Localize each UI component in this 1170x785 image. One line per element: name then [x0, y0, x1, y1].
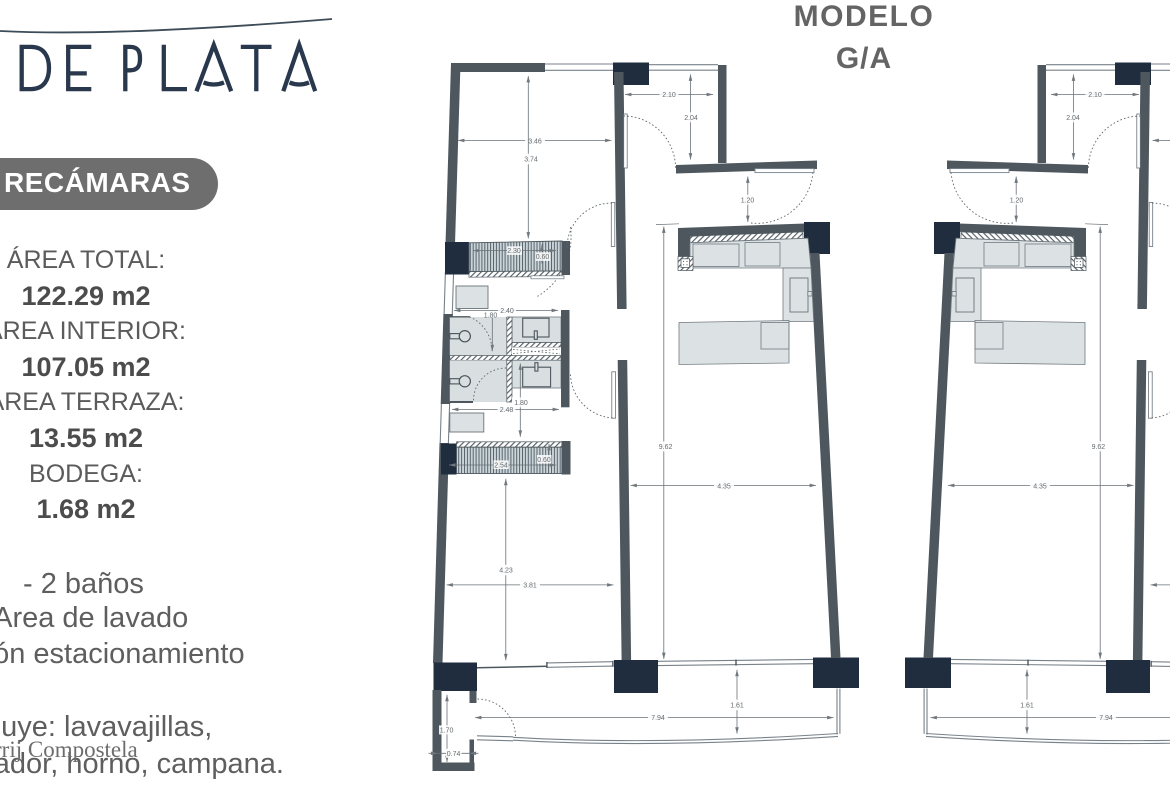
- svg-text:4.35: 4.35: [717, 484, 731, 491]
- svg-text:9.62: 9.62: [1092, 444, 1106, 451]
- svg-text:9.62: 9.62: [659, 444, 673, 451]
- svg-text:2.04: 2.04: [1066, 115, 1080, 122]
- svg-text:3.74: 3.74: [524, 157, 538, 164]
- svg-text:0.60: 0.60: [537, 457, 551, 464]
- svg-text:1.20: 1.20: [741, 197, 755, 204]
- svg-text:2.40: 2.40: [500, 308, 514, 315]
- svg-text:2.48: 2.48: [500, 407, 514, 414]
- svg-text:1.20: 1.20: [1010, 197, 1024, 204]
- svg-text:3.81: 3.81: [523, 583, 537, 590]
- svg-text:1.61: 1.61: [1020, 703, 1034, 710]
- svg-text:3.46: 3.46: [528, 138, 542, 145]
- svg-text:7.94: 7.94: [651, 715, 665, 722]
- svg-text:2.54: 2.54: [494, 462, 508, 469]
- svg-text:1.70: 1.70: [440, 728, 454, 735]
- svg-text:7.94: 7.94: [1099, 715, 1113, 722]
- svg-text:4.35: 4.35: [1033, 484, 1047, 491]
- svg-text:0.74: 0.74: [447, 751, 461, 758]
- svg-text:2.04: 2.04: [684, 115, 698, 122]
- svg-text:0.60: 0.60: [536, 254, 550, 261]
- svg-text:2.30: 2.30: [507, 248, 521, 255]
- svg-text:1.80: 1.80: [484, 313, 498, 320]
- svg-text:1.61: 1.61: [730, 703, 744, 710]
- svg-text:4.23: 4.23: [499, 568, 513, 575]
- svg-text:2.10: 2.10: [1088, 92, 1102, 99]
- svg-text:2.10: 2.10: [662, 92, 676, 99]
- svg-text:1.80: 1.80: [514, 400, 528, 407]
